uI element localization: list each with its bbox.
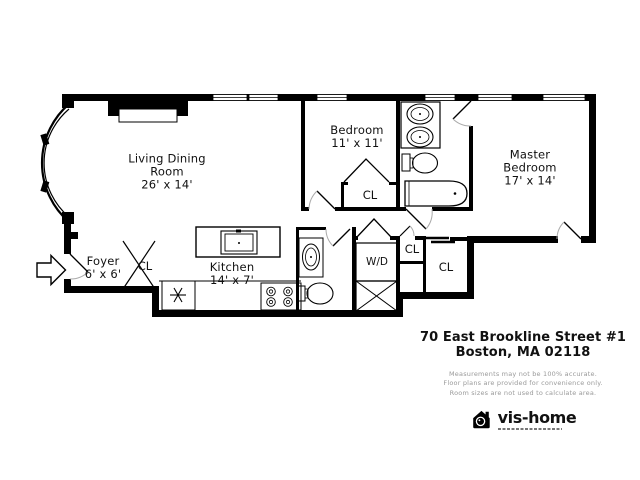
room-dims: 14' x 7' [210,274,255,287]
bedroom-label: Bedroom 11' x 11' [330,124,383,150]
bath-bottom-wall [432,207,473,211]
washer-dryer-label: W/D [366,256,388,268]
bath-bottom-stub [396,207,406,211]
laundry-bifold-door [357,219,391,237]
kitchen-label: Kitchen 14' x 7' [210,261,255,287]
stove [261,283,301,310]
bedroom-door [309,191,335,209]
bay-window [40,104,69,222]
address-line1: 70 East Brookline Street #1 [420,331,626,346]
window-icon [213,95,247,101]
bathroom-fixtures [401,102,467,206]
snowflake-icon [170,288,186,302]
room-name: Living Dining [128,153,206,166]
floor-plan-page: Living Dining Room 26' x 14' Bedroom 11'… [0,0,640,480]
bedroom-bath-wall [396,101,400,211]
room-dims: 11' x 11' [330,137,383,150]
closet-divider-wall [423,236,426,296]
window-icon [425,95,455,101]
vanity-double-sink [401,102,440,148]
master-rear-door [557,222,581,239]
window-icon [317,95,347,101]
powder-sink [299,238,323,277]
room-name: Bedroom [503,162,556,175]
bedroom-bottom-wall [335,207,398,211]
room-name: Master [503,149,556,162]
annotation-block: 70 East Brookline Street #1 Boston, MA 0… [420,331,626,431]
room-name: Kitchen [210,261,255,274]
room-dims: 26' x 14' [128,178,206,191]
vis-home-logo: vis-home [420,409,626,431]
laundry-fixtures [356,243,397,311]
small-closet-door [400,226,414,236]
bedroom-closet-left-wall [341,182,344,209]
fireplace-hearth [119,109,177,122]
master-bottom-wall [470,236,558,243]
bathtub [405,181,467,206]
master-bottom-wall-stub [581,236,596,243]
entry-arrow-icon [37,256,66,285]
disclaimer-line3: Room sizes are not used to calculate are… [420,389,626,398]
bedroom-closet-top-stub-l [341,182,348,185]
window-icon [478,95,512,101]
hall-closet-small-label: CL [405,242,419,256]
small-closet-bottom-wall [398,261,426,264]
powder-toilet [297,283,333,304]
kitchen-island-sink [196,227,280,257]
room-name: Bedroom [330,124,383,137]
master-bath-door [453,101,471,126]
foyer-closet-label: CL [138,259,152,273]
bedroom-closet-top-stub-r [389,182,398,185]
powder-door [326,229,350,246]
foyer-left-wall-lower [64,279,71,293]
disclaimer-line2: Floor plans are provided for convenience… [420,379,626,388]
disclaimer-line1: Measurements may not be 100% accurate. [420,370,626,379]
room-dims: 6' x 6' [85,268,121,281]
bay-window-outer-arc [42,104,69,222]
toilet [402,153,438,173]
powder-room-fixtures [297,238,333,304]
bath-master-wall [469,126,473,211]
powder-top-wall [296,227,326,230]
room-dims: 17' x 14' [503,174,556,187]
window-icon [249,95,278,101]
disclaimer: Measurements may not be 100% accurate. F… [420,370,626,398]
closet-right-step-wall [467,236,474,299]
master-bedroom-label: Master Bedroom 17' x 14' [503,149,556,188]
large-closet-top-stub [450,237,469,241]
bedroom-bottom-stub [301,207,309,211]
fireplace [108,94,188,122]
logo-tagline-bar [498,428,562,430]
window-icon [543,95,585,101]
walls [62,94,596,317]
refrigerator [162,281,195,310]
living-bedroom-wall [301,101,305,211]
right-exterior-wall [589,94,596,243]
room-name: Foyer [85,255,121,268]
bay-window-inner-arc [44,109,69,217]
room-name: Room [128,166,206,179]
vis-home-house-camera-icon [470,409,493,431]
bedroom-closet-label: CL [363,188,377,202]
address-line2: Boston, MA 02118 [420,346,626,361]
foyer-bottom-wall [64,286,159,293]
x-crossed-box-icon [356,281,397,311]
closet-bottom-wall [398,292,474,299]
logo-text-wrap: vis-home [498,410,577,430]
foyer-label: Foyer 6' x 6' [85,255,121,281]
foyer-top-stub [64,232,78,239]
hall-closet-large-label: CL [439,260,453,274]
living-dining-label: Living Dining Room 26' x 14' [128,153,206,192]
logo-text: vis-home [498,410,577,426]
bedroom-closet-bifold-door [344,159,389,182]
